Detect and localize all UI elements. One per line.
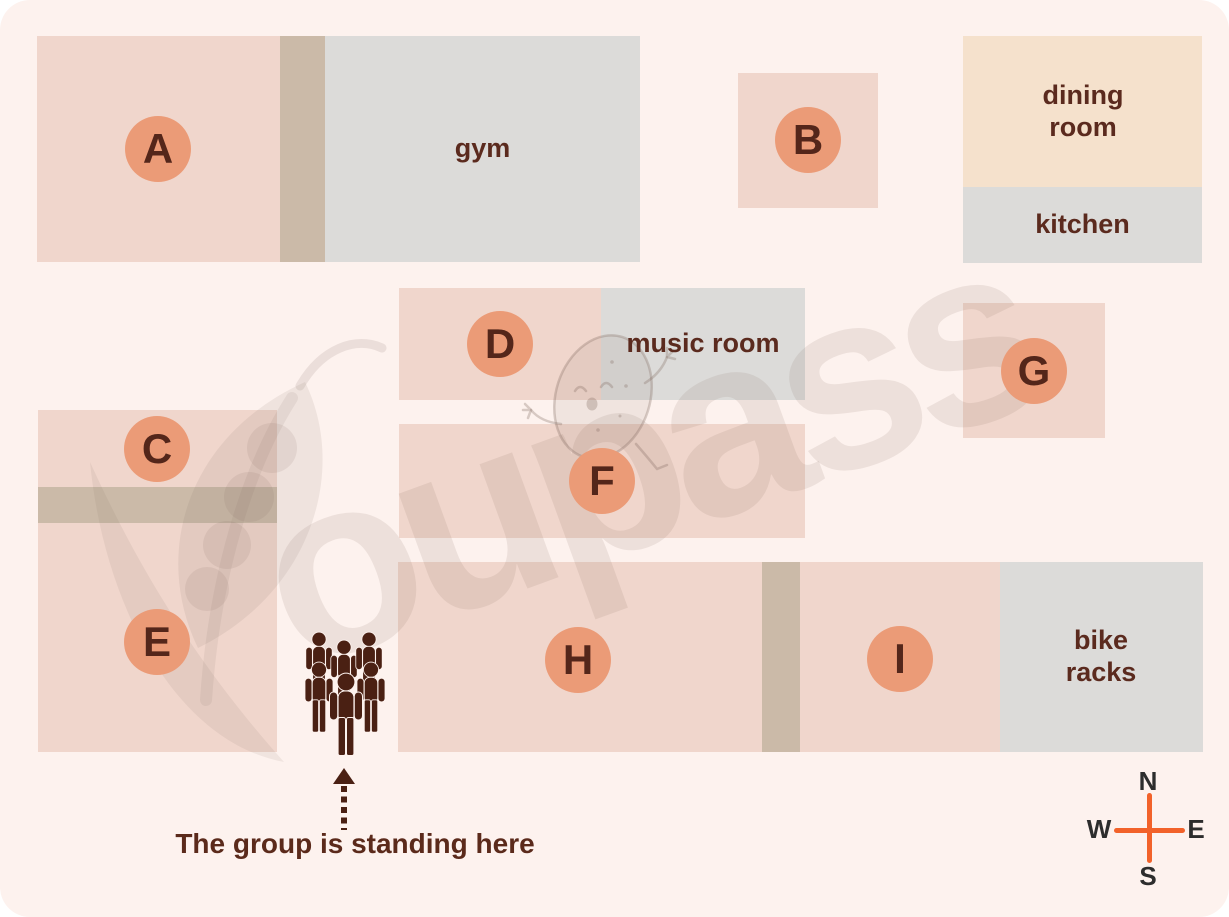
- building-e-badge: E: [124, 609, 190, 675]
- building-f-label: F: [589, 457, 615, 505]
- group-location-annotation: The group is standing here: [175, 828, 534, 860]
- arrow-dashed-line: [341, 786, 347, 830]
- gym-label: gym: [325, 36, 640, 262]
- walkway-connector-a-gym: [280, 36, 325, 262]
- music-room-label: music room: [601, 288, 805, 400]
- building-h-badge: H: [545, 627, 611, 693]
- bike-racks-label: bike racks: [1046, 562, 1156, 752]
- compass-vertical-line: [1147, 793, 1152, 863]
- compass-west-label: W: [1087, 814, 1112, 845]
- building-i-badge: I: [867, 626, 933, 692]
- building-b-badge: B: [775, 107, 841, 173]
- building-f-badge: F: [569, 448, 635, 514]
- building-d-badge: D: [467, 311, 533, 377]
- arrow-up-icon: [333, 768, 355, 784]
- building-h-label: H: [563, 636, 593, 684]
- building-b-label: B: [793, 116, 823, 164]
- building-a-badge: A: [125, 116, 191, 182]
- building-d-label: D: [485, 320, 515, 368]
- building-g-label: G: [1018, 347, 1051, 395]
- schoolyard-map-card: oupass A B C: [0, 0, 1229, 917]
- kitchen-label: kitchen: [963, 187, 1202, 263]
- walkway-connector-h-i: [762, 562, 800, 752]
- building-e-label: E: [143, 618, 171, 666]
- walkway-connector-c-e: [38, 487, 277, 523]
- building-c-label: C: [142, 425, 172, 473]
- compass-south-label: S: [1139, 861, 1156, 892]
- dining-room-label: dining room: [1013, 36, 1153, 187]
- building-a-label: A: [143, 125, 173, 173]
- group-of-people-icon: [301, 629, 391, 757]
- building-i-label: I: [894, 635, 906, 683]
- building-g-badge: G: [1001, 338, 1067, 404]
- compass-east-label: E: [1187, 814, 1204, 845]
- building-c-badge: C: [124, 416, 190, 482]
- compass-north-label: N: [1139, 766, 1158, 797]
